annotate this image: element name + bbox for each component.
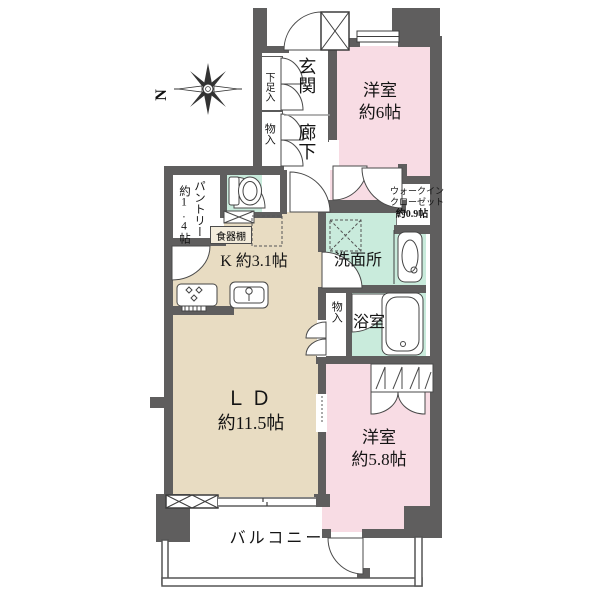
pantry-size-label: 約1.4帖	[176, 185, 191, 244]
stove-icon	[177, 284, 217, 311]
kitchen-sink-icon	[230, 282, 268, 308]
washbasin-icon	[394, 230, 422, 284]
hallway-label: 廊下	[294, 123, 317, 161]
wic-line3: 約0.9帖	[390, 209, 434, 222]
washroom-label: 洗面所	[322, 251, 394, 272]
closet-hatch	[371, 364, 433, 392]
cabinet-x-box	[224, 211, 254, 223]
refrigerator-space	[252, 216, 282, 246]
entrance-door-arc	[284, 12, 322, 50]
closet58-door-arc	[398, 392, 425, 414]
ld-x-window	[166, 495, 218, 508]
corridor-door-arc	[290, 172, 330, 212]
bath-closet-label: 物入	[329, 301, 343, 323]
floor-plan: N 食器棚 玄関 廊下 下足入 物入 洋室 約6帖 ウォークイン クローゼット …	[0, 0, 600, 600]
bedroom6-label: 洋室 約6帖	[332, 80, 428, 124]
kitchen-label: K 約3.1帖	[198, 252, 310, 273]
bedroom58-name: 洋室	[326, 427, 432, 449]
bath-closet-door-arc	[306, 339, 326, 355]
shoe-box-label: 下足入	[262, 72, 275, 102]
wic-label: ウォークイン クローゼット 約0.9帖	[390, 186, 434, 221]
pipe-space-box	[321, 12, 349, 50]
dish-shelf-label: 食器棚	[216, 228, 246, 243]
washer-space	[330, 220, 361, 251]
bedroom58-size: 約5.8帖	[326, 449, 432, 471]
genkan-label: 玄関	[294, 57, 317, 95]
bedroom58-label: 洋室 約5.8帖	[326, 427, 432, 471]
window	[357, 31, 399, 42]
compass-north-label: N	[153, 89, 170, 101]
toilet-icon	[229, 177, 262, 205]
living-name: ＬＤ	[196, 386, 306, 412]
pantry-name-label: パントリー	[191, 180, 206, 238]
wic-line2: クローゼット	[390, 197, 434, 208]
dish-shelf-box: 食器棚	[210, 226, 252, 244]
compass-icon: N	[153, 63, 242, 115]
living-label: ＬＤ 約11.5帖	[196, 386, 306, 435]
closet58-door-arc	[371, 392, 398, 414]
living-size: 約11.5帖	[196, 412, 306, 435]
wic-line1: ウォークイン	[390, 186, 434, 197]
bedroom6-name: 洋室	[332, 80, 428, 102]
hall-closet-label: 物入	[262, 123, 276, 145]
balcony-label: バルコニー	[210, 529, 344, 550]
ld-sliding-window	[218, 497, 316, 507]
bathroom-label: 浴室	[346, 313, 392, 334]
bedroom6-size: 約6帖	[332, 102, 428, 124]
bath-closet-door-arc	[306, 322, 326, 338]
